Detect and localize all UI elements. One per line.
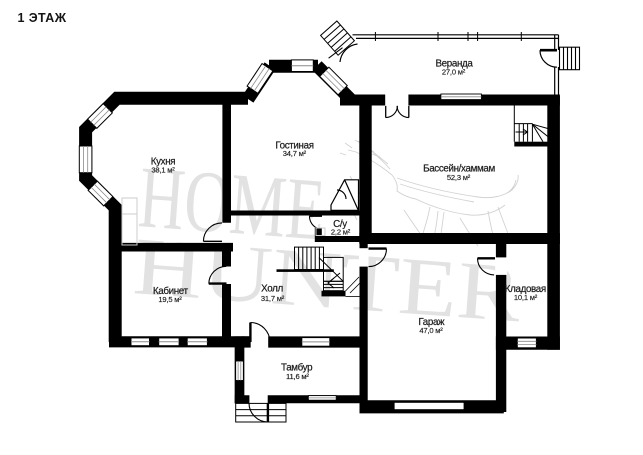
svg-text:11,6 м²: 11,6 м² (286, 372, 309, 381)
svg-text:52,3 м²: 52,3 м² (447, 173, 471, 182)
svg-text:19,5 м²: 19,5 м² (158, 295, 182, 304)
svg-text:27,0 м²: 27,0 м² (442, 68, 466, 77)
svg-text:34,7 м²: 34,7 м² (283, 149, 307, 158)
svg-text:1 ЭТАЖ: 1 ЭТАЖ (18, 11, 67, 25)
svg-text:2,2 м²: 2,2 м² (331, 228, 351, 237)
svg-text:38,1 м²: 38,1 м² (151, 166, 175, 175)
svg-text:31,7 м²: 31,7 м² (261, 294, 285, 303)
svg-text:10,1 м²: 10,1 м² (514, 293, 538, 302)
svg-text:47,0 м²: 47,0 м² (419, 326, 443, 335)
